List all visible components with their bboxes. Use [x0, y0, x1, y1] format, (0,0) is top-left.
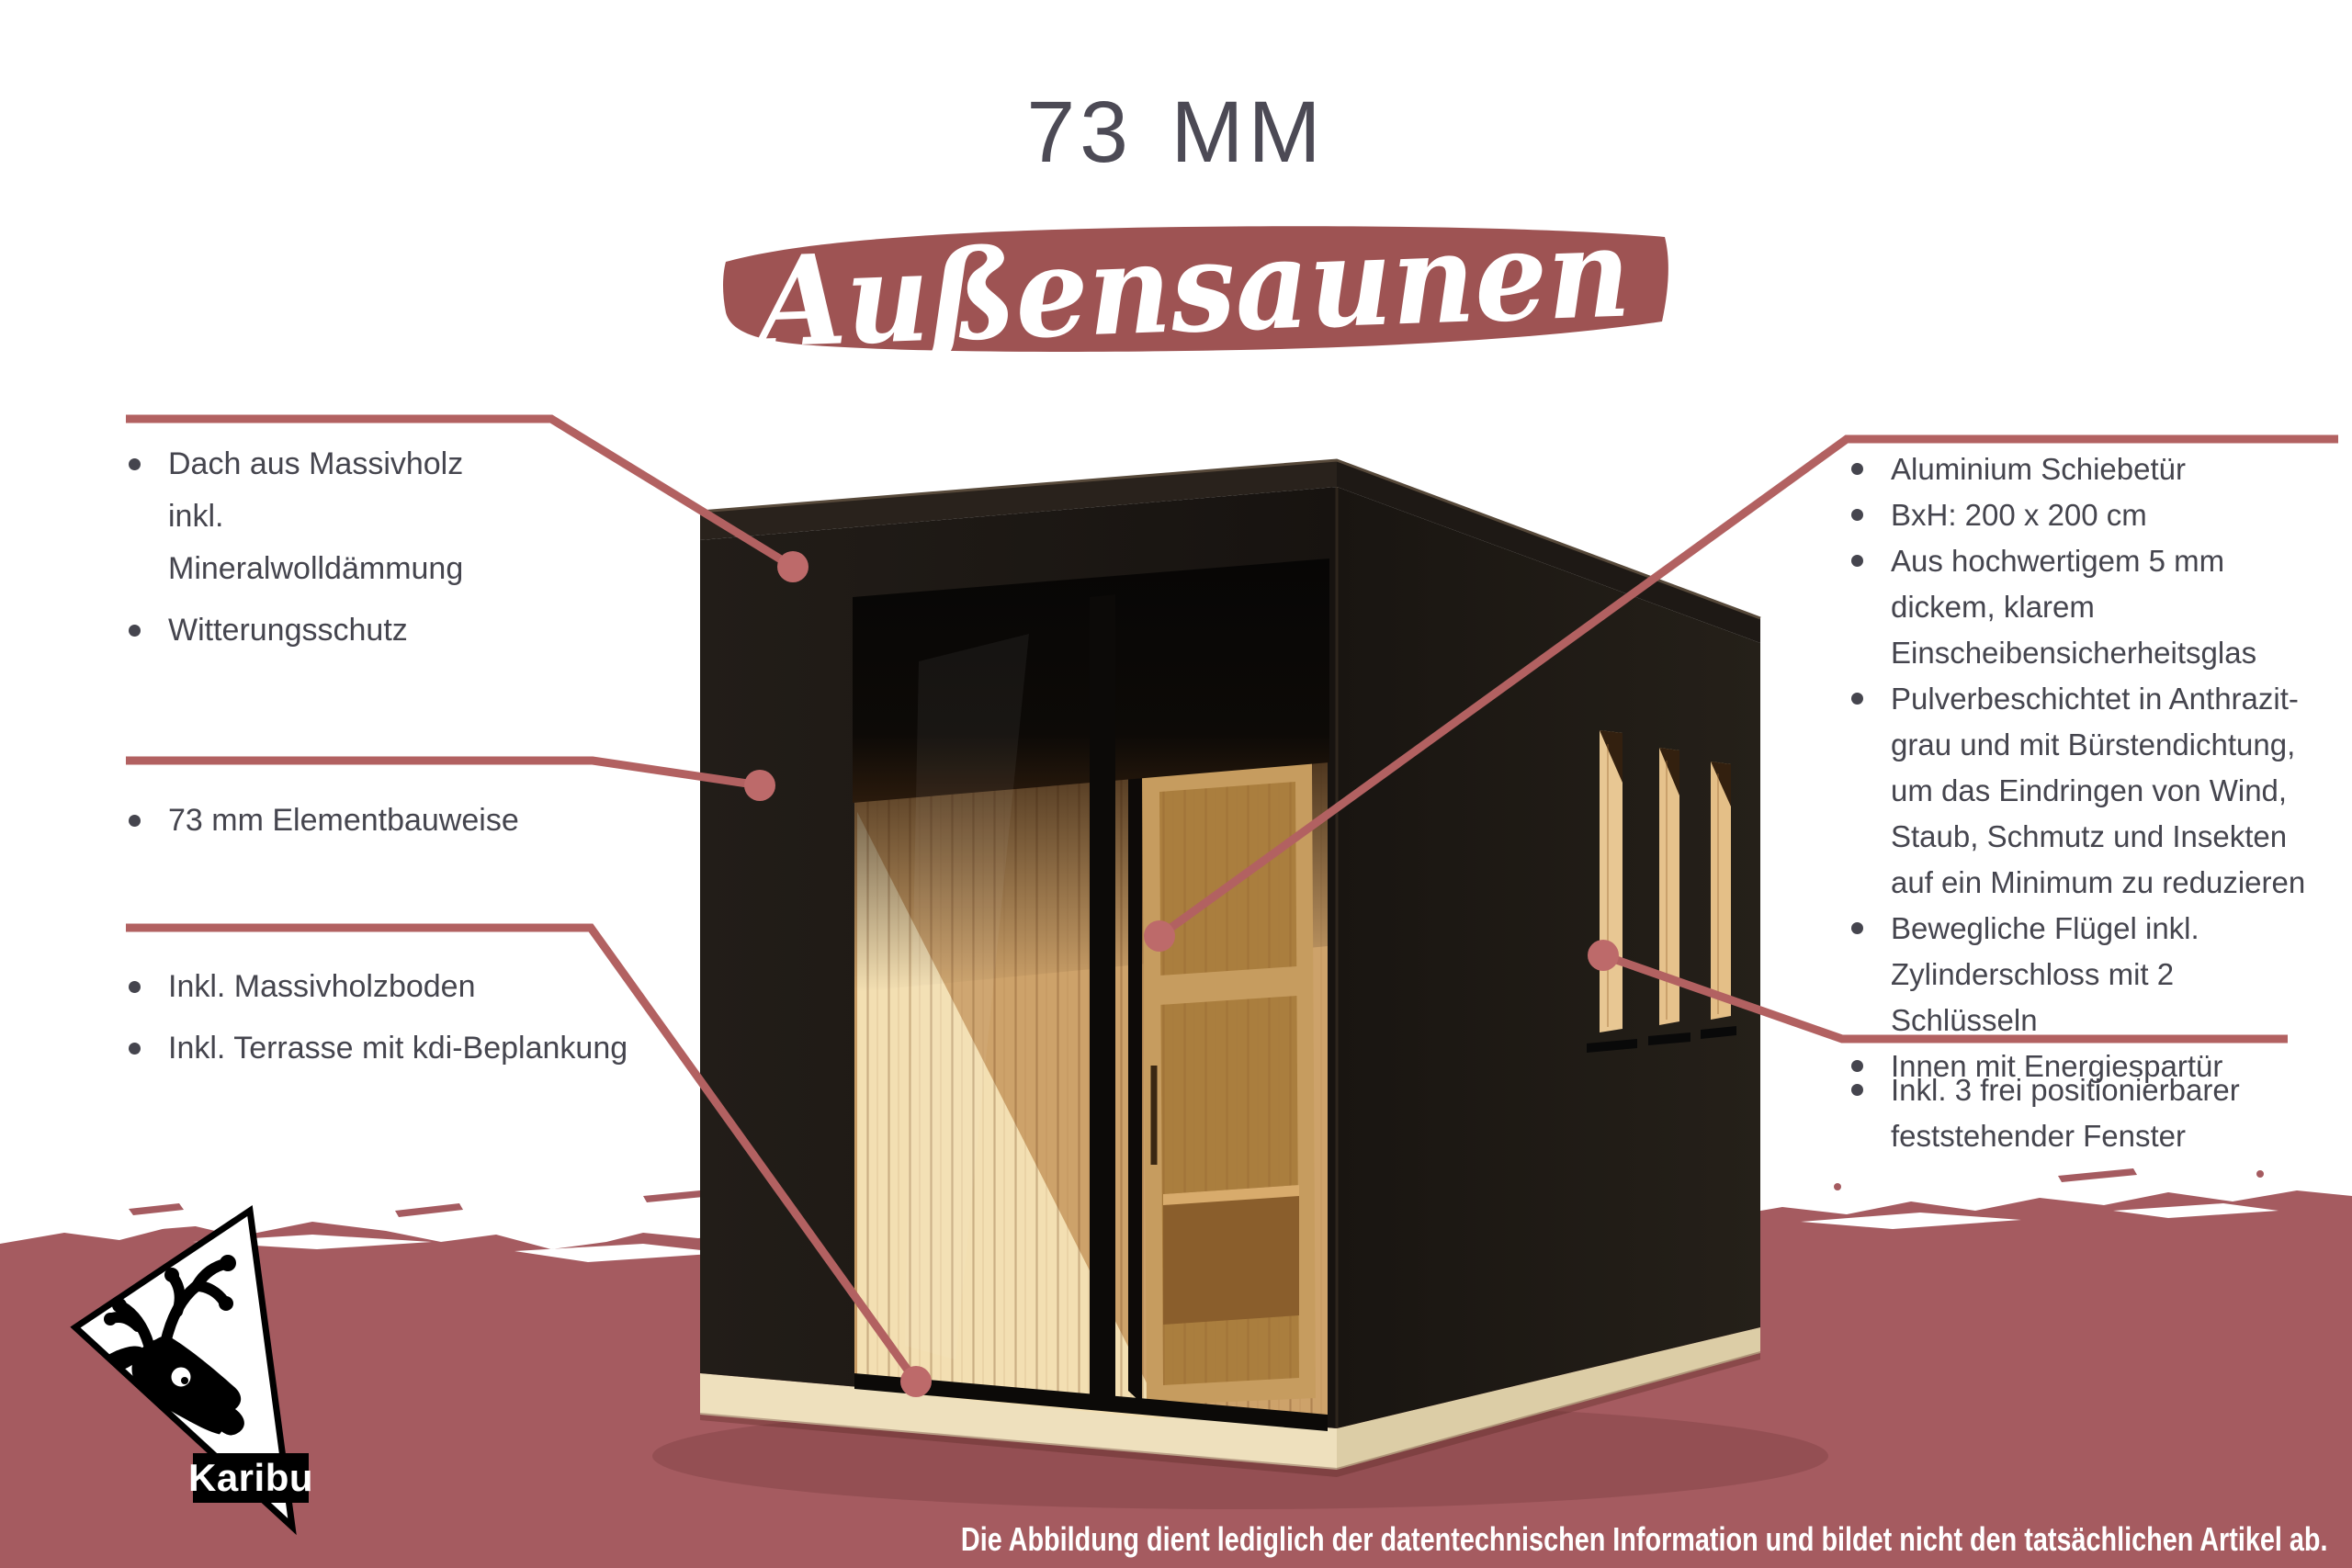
- sauna-windows: [1587, 730, 1736, 1053]
- sauna-interior: [853, 558, 1329, 1431]
- annotation-list: 73 mm Elementbauweise: [126, 795, 677, 847]
- annotation-list: Aluminium SchiebetürBxH: 200 x 200 cmAus…: [1849, 446, 2326, 1089]
- annotation-list: Dach aus Massivholz inkl. Mineralwolldäm…: [126, 438, 512, 657]
- annotation-item: 73 mm Elementbauweise: [126, 795, 677, 847]
- brush-speck: [2256, 1170, 2264, 1178]
- banner-script-text: Außensaunen: [746, 198, 1633, 375]
- annotation-item: Dach aus Massivholz inkl. Mineralwolldäm…: [126, 438, 512, 595]
- annotation-block-windows: Inkl. 3 frei positionierbarer feststehen…: [1849, 1067, 2280, 1159]
- annotation-list: Inkl. 3 frei positionierbarer feststehen…: [1849, 1067, 2280, 1159]
- leader-dot-wall: [744, 770, 775, 801]
- annotation-item: Witterungsschutz: [126, 604, 512, 657]
- annotation-item: Aus hochwertigem 5 mm dickem, klarem Ein…: [1849, 538, 2326, 676]
- leader-dot-window: [1588, 940, 1619, 971]
- annotation-item: Inkl. Terrasse mit kdi-Beplankung: [126, 1022, 677, 1075]
- brush-speck: [2058, 1168, 2137, 1182]
- inner-bench: [1163, 1185, 1299, 1325]
- leader-dot-roof: [777, 551, 808, 582]
- annotation-item: Bewegliche Flügel inkl. Zylinderschloss …: [1849, 906, 2326, 1043]
- brush-speck: [395, 1203, 463, 1217]
- glass-door-divider: [1090, 594, 1115, 1411]
- sauna-right-wall: [1337, 487, 1760, 1428]
- page-title: 73 MM: [0, 83, 2352, 183]
- deer-eye: [169, 1365, 193, 1389]
- leader-line-wall: [126, 761, 760, 785]
- annotation-item: Pulverbeschichtet in Anthrazit-grau und …: [1849, 676, 2326, 906]
- annotation-block-wall: 73 mm Elementbauweise: [126, 795, 677, 856]
- annotation-item: BxH: 200 x 200 cm: [1849, 492, 2326, 538]
- leader-dot-door: [1144, 920, 1175, 952]
- window-slit: [1600, 730, 1623, 1032]
- annotation-block-floor: Inkl. MassivholzbodenInkl. Terrasse mit …: [126, 961, 677, 1084]
- footer-disclaimer: Die Abbildung dient lediglich der datent…: [961, 1520, 2328, 1559]
- annotation-item: Inkl. Massivholzboden: [126, 961, 677, 1013]
- annotation-block-door: Aluminium SchiebetürBxH: 200 x 200 cmAus…: [1849, 446, 2326, 1089]
- brush-gap: [83, 1216, 230, 1231]
- brush-speck: [643, 1190, 704, 1202]
- brush-speck: [1834, 1183, 1841, 1190]
- annotation-list: Inkl. MassivholzbodenInkl. Terrasse mit …: [126, 961, 677, 1075]
- infographic-page: Außensaunen: [0, 0, 2352, 1568]
- leader-dot-floor: [900, 1366, 932, 1397]
- annotation-block-roof: Dach aus Massivholz inkl. Mineralwolldäm…: [126, 438, 512, 666]
- brush-speck: [129, 1203, 184, 1215]
- annotation-item: Aluminium Schiebetür: [1849, 446, 2326, 492]
- logo-wordmark: Karibu: [188, 1456, 313, 1499]
- inner-door-gap: [1128, 770, 1142, 1404]
- window-slit: [1711, 761, 1731, 1020]
- annotation-item: Inkl. 3 frei positionierbarer feststehen…: [1849, 1067, 2280, 1159]
